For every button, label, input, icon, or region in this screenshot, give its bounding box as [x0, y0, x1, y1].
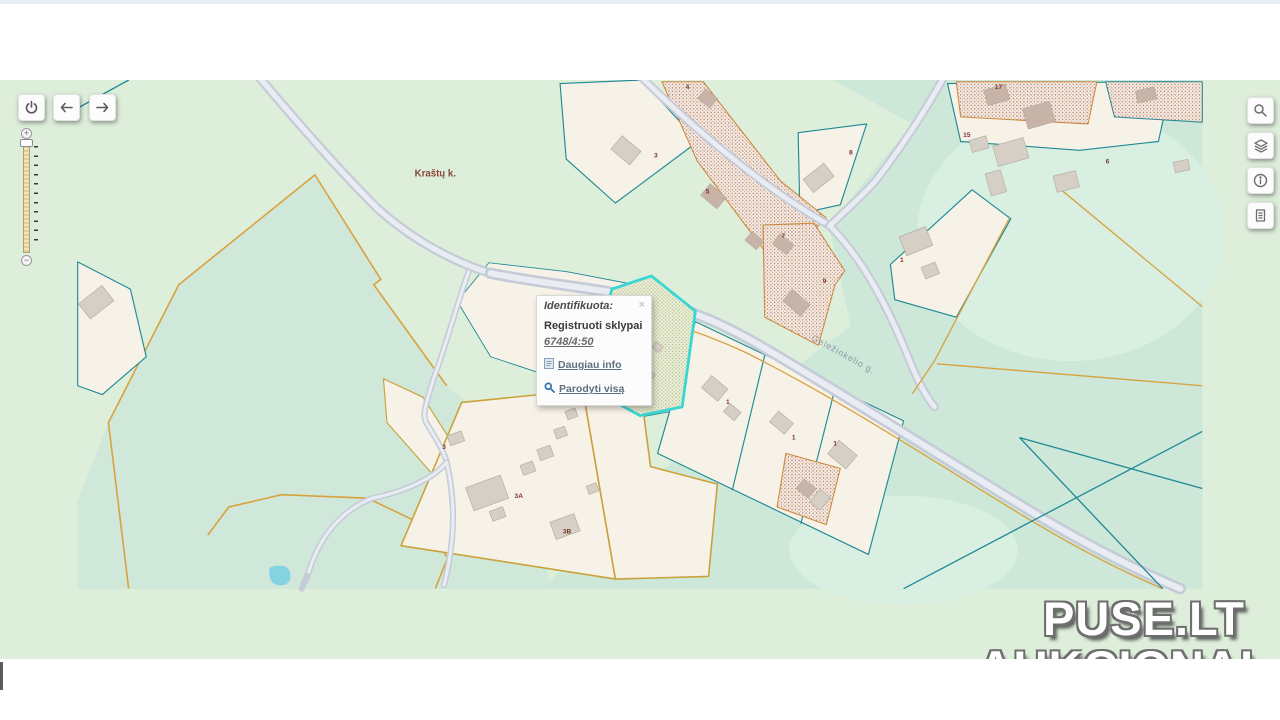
parodyti-visa-link[interactable]: Parodyti visą: [559, 383, 624, 395]
document-button[interactable]: [1247, 202, 1274, 229]
power-icon: [24, 100, 39, 115]
back-button[interactable]: [53, 94, 80, 121]
region-label: Kraštų k.: [415, 169, 457, 180]
svg-text:15: 15: [963, 132, 971, 139]
identify-popup: Identifikuota: × Registruoti sklypai 674…: [536, 295, 652, 406]
zoom-ticks: [34, 146, 38, 248]
daugiau-info-link[interactable]: Daugiau info: [558, 359, 622, 371]
svg-text:1: 1: [833, 440, 837, 447]
document-icon: [1253, 208, 1268, 223]
zoom-in-button[interactable]: +: [21, 128, 32, 139]
daugiau-info-icon: [544, 356, 554, 374]
svg-text:1: 1: [900, 257, 904, 264]
zoom-slider[interactable]: + −: [20, 128, 40, 268]
forward-button[interactable]: [89, 94, 116, 121]
top-white-band: [0, 0, 1280, 80]
arrow-left-icon: [59, 100, 74, 115]
popup-title: Identifikuota:: [544, 300, 613, 312]
top-edge-line: [0, 0, 1280, 4]
info-icon: [1253, 173, 1268, 188]
parodyti-visa-magnifier-icon: [544, 380, 555, 398]
svg-text:4: 4: [686, 84, 690, 91]
zoom-out-button[interactable]: −: [21, 255, 32, 266]
layers-button[interactable]: [1247, 132, 1274, 159]
close-icon[interactable]: ×: [639, 300, 645, 311]
popup-section-title: Registruoti sklypai: [544, 320, 645, 332]
left-edge-mark: [0, 662, 3, 690]
bottom-white-band: [0, 659, 1280, 720]
layers-icon: [1253, 138, 1269, 154]
zoom-track[interactable]: [23, 141, 30, 253]
svg-text:6: 6: [1106, 158, 1110, 165]
watermark-line1: PUSE.LT: [979, 594, 1245, 643]
search-icon: [1253, 103, 1268, 118]
svg-text:7: 7: [781, 233, 785, 240]
svg-text:5: 5: [706, 188, 710, 195]
parcel-code-link[interactable]: 6748/4:50: [544, 336, 594, 348]
svg-text:8: 8: [849, 150, 853, 157]
svg-text:9: 9: [823, 278, 827, 285]
svg-text:3A: 3A: [515, 493, 524, 500]
svg-text:3B: 3B: [563, 528, 572, 535]
arrow-right-icon: [95, 100, 110, 115]
info-button[interactable]: [1247, 167, 1274, 194]
search-button[interactable]: [1247, 97, 1274, 124]
svg-text:1: 1: [792, 434, 796, 441]
svg-text:3: 3: [654, 152, 658, 159]
svg-text:3: 3: [442, 444, 446, 451]
svg-text:17: 17: [995, 84, 1003, 91]
power-button[interactable]: [18, 94, 45, 121]
svg-text:1: 1: [726, 399, 730, 406]
zoom-handle[interactable]: [20, 139, 33, 147]
